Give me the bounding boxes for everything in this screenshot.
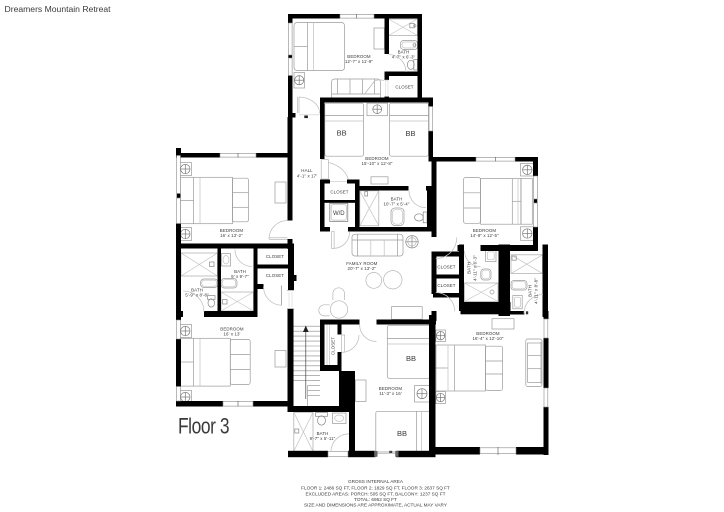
svg-text:CLOSET: CLOSET	[266, 273, 284, 278]
svg-text:4'-1" x 17': 4'-1" x 17'	[297, 173, 317, 178]
svg-text:4'-7" x 6'-3": 4'-7" x 6'-3"	[392, 55, 416, 60]
svg-text:Dreamers Mountain Retreat: Dreamers Mountain Retreat	[5, 4, 112, 14]
svg-text:EXCLUDED AREAS: PORCH: 505 SQ: EXCLUDED AREAS: PORCH: 505 SQ FT, BALCON…	[306, 491, 446, 496]
svg-text:16' x 13': 16' x 13'	[224, 332, 241, 337]
svg-text:FLOOR 1: 2486 SQ FT, FLOOR 2:: FLOOR 1: 2486 SQ FT, FLOOR 2: 1829 SQ FT…	[301, 485, 450, 490]
svg-text:20'-7" x 13'-2": 20'-7" x 13'-2"	[348, 266, 377, 271]
svg-text:14'-9" x 12'-5": 14'-9" x 12'-5"	[470, 233, 499, 238]
svg-text:BB: BB	[337, 128, 347, 137]
svg-text:BB: BB	[406, 354, 416, 363]
svg-text:CLOSET: CLOSET	[331, 337, 336, 355]
svg-text:CLOSET: CLOSET	[395, 85, 413, 90]
svg-text:11'-3" x 16': 11'-3" x 16'	[379, 391, 401, 396]
svg-text:BATH: BATH	[467, 262, 472, 274]
svg-text:16'-4" x 12'-10": 16'-4" x 12'-10"	[472, 336, 503, 341]
svg-text:CLOSET: CLOSET	[266, 254, 284, 259]
svg-text:BATH: BATH	[528, 285, 533, 297]
svg-text:W/D: W/D	[333, 211, 345, 217]
svg-text:9' x 9'-7": 9' x 9'-7"	[231, 274, 249, 279]
svg-text:CLOSET: CLOSET	[437, 283, 455, 288]
svg-text:CLOSET: CLOSET	[437, 265, 455, 270]
svg-text:15'-10" x 12'-8": 15'-10" x 12'-8"	[361, 161, 392, 166]
svg-text:BB: BB	[405, 129, 415, 138]
svg-text:12'-7" x 11'-9": 12'-7" x 11'-9"	[345, 59, 374, 64]
svg-text:10'-7" x 5'-4": 10'-7" x 5'-4"	[384, 202, 410, 207]
svg-text:BB: BB	[397, 429, 407, 438]
svg-text:GROSS INTERNAL AREA: GROSS INTERNAL AREA	[348, 479, 404, 484]
svg-text:5'-9" x 8'-8": 5'-9" x 8'-8"	[185, 293, 209, 298]
svg-text:TOTAL: 6952 SQ FT: TOTAL: 6952 SQ FT	[354, 497, 397, 502]
svg-text:9'-7" x 5'-11": 9'-7" x 5'-11"	[310, 436, 336, 441]
svg-text:SIZE AND DIMENSIONS ARE APPROX: SIZE AND DIMENSIONS ARE APPROXIMATE, ACT…	[304, 503, 448, 508]
svg-text:HALL: HALL	[301, 168, 313, 173]
svg-text:4'-11" x 8'-8": 4'-11" x 8'-8"	[534, 278, 539, 304]
svg-text:16' x 13'-2": 16' x 13'-2"	[220, 233, 243, 238]
svg-text:Floor 3: Floor 3	[178, 415, 230, 439]
svg-text:CLOSET: CLOSET	[330, 190, 348, 195]
svg-text:4'-11" x 6'-3": 4'-11" x 6'-3"	[473, 255, 478, 281]
